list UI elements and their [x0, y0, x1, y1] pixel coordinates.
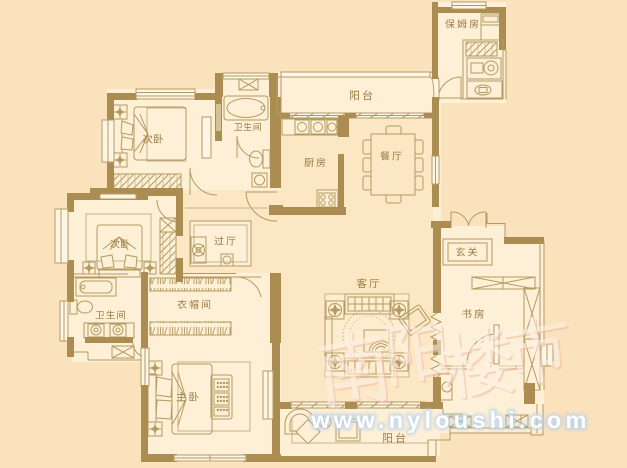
svg-text:www.nyloushi.com: www.nyloushi.com	[310, 407, 590, 433]
